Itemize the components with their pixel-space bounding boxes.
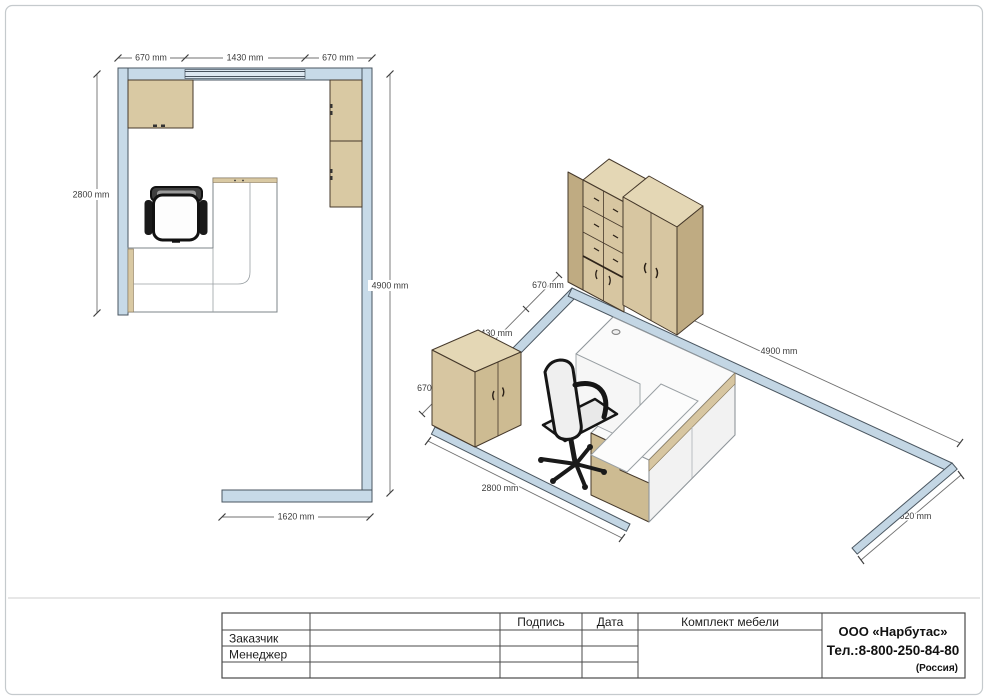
- plan-dim-top: 670 mm 1430 mm 670 mm: [115, 52, 376, 63]
- row-manager-label: Менеджер: [229, 648, 288, 662]
- title-block: Подпись Дата Комплект мебели Заказчик Ме…: [8, 598, 980, 678]
- handle-mark: [161, 125, 165, 128]
- plan-cabinet-top-left: [128, 80, 193, 128]
- plan-window: [185, 70, 305, 79]
- desk-cable-grommet: [612, 330, 620, 335]
- chair-armrest-right: [200, 200, 208, 235]
- handle-mark: [331, 169, 333, 173]
- plan-dim-top-mid-label: 1430 mm: [227, 53, 264, 63]
- handle-mark: [234, 180, 236, 182]
- company-name: ООО «Нарбутас»: [838, 624, 947, 639]
- plan-dim-right: 4900 mm: [368, 71, 412, 497]
- plan-dim-top-right-label: 670 mm: [322, 53, 354, 63]
- handle-mark: [331, 176, 333, 180]
- iso-dim-back-wall-right-label: 670 mm: [532, 280, 564, 290]
- plan-dim-right-label: 4900 mm: [372, 281, 409, 291]
- iso-front-right-wall: [852, 463, 957, 554]
- iso-dim-left-wall-label: 2800 mm: [482, 483, 519, 493]
- chair-seat: [154, 195, 199, 240]
- plan-dim-bottom-label: 1620 mm: [278, 512, 315, 522]
- iso-dim-right-wall-label: 4900 mm: [761, 346, 798, 356]
- company-phone: Тел.:8-800-250-84-80: [827, 643, 959, 658]
- wardrobe-side: [677, 206, 703, 335]
- plan-cabinet-right-upper: [330, 80, 362, 141]
- handle-mark: [242, 180, 244, 182]
- chair-gas-lift: [571, 440, 575, 462]
- company-country: (Россия): [916, 663, 958, 674]
- handle-mark: [331, 104, 333, 108]
- iso-wardrobe: [623, 176, 703, 335]
- desk-left-edge-band: [128, 249, 134, 312]
- iso-dim-front-wall: 1620 mm: [858, 471, 964, 564]
- row-customer-label: Заказчик: [229, 632, 279, 646]
- plan-dim-bottom: 1620 mm: [219, 511, 374, 522]
- plan-dim-top-left-label: 670 mm: [135, 53, 167, 63]
- desk-top-edge-band: [213, 178, 277, 183]
- bookcase-side-panel: [568, 172, 583, 290]
- col-date-header: Дата: [597, 615, 624, 629]
- floor-plan: 670 mm 1430 mm 670 mm: [69, 52, 412, 522]
- handle-mark: [153, 125, 157, 128]
- drawing-canvas: 670 mm 1430 mm 670 mm: [0, 0, 988, 700]
- plan-left-wall: [118, 68, 128, 315]
- plan-dim-left: 2800 mm: [69, 71, 113, 317]
- product-title: Комплект мебели: [681, 615, 779, 629]
- handle-mark: [331, 111, 333, 115]
- furniture-plan-sheet: 670 mm 1430 mm 670 mm: [0, 0, 988, 700]
- col-signature-header: Подпись: [517, 615, 565, 629]
- iso-small-cabinet: [432, 330, 521, 447]
- plan-office-chair: [145, 187, 208, 242]
- plan-bottom-wall: [222, 490, 372, 502]
- plan-dim-left-label: 2800 mm: [73, 190, 110, 200]
- iso-view: 670 mm 1430 mm 670 mm 4900 mm 2800 mm 16…: [417, 159, 964, 564]
- plan-cabinet-right-lower: [330, 141, 362, 207]
- chair-armrest-left: [145, 200, 153, 235]
